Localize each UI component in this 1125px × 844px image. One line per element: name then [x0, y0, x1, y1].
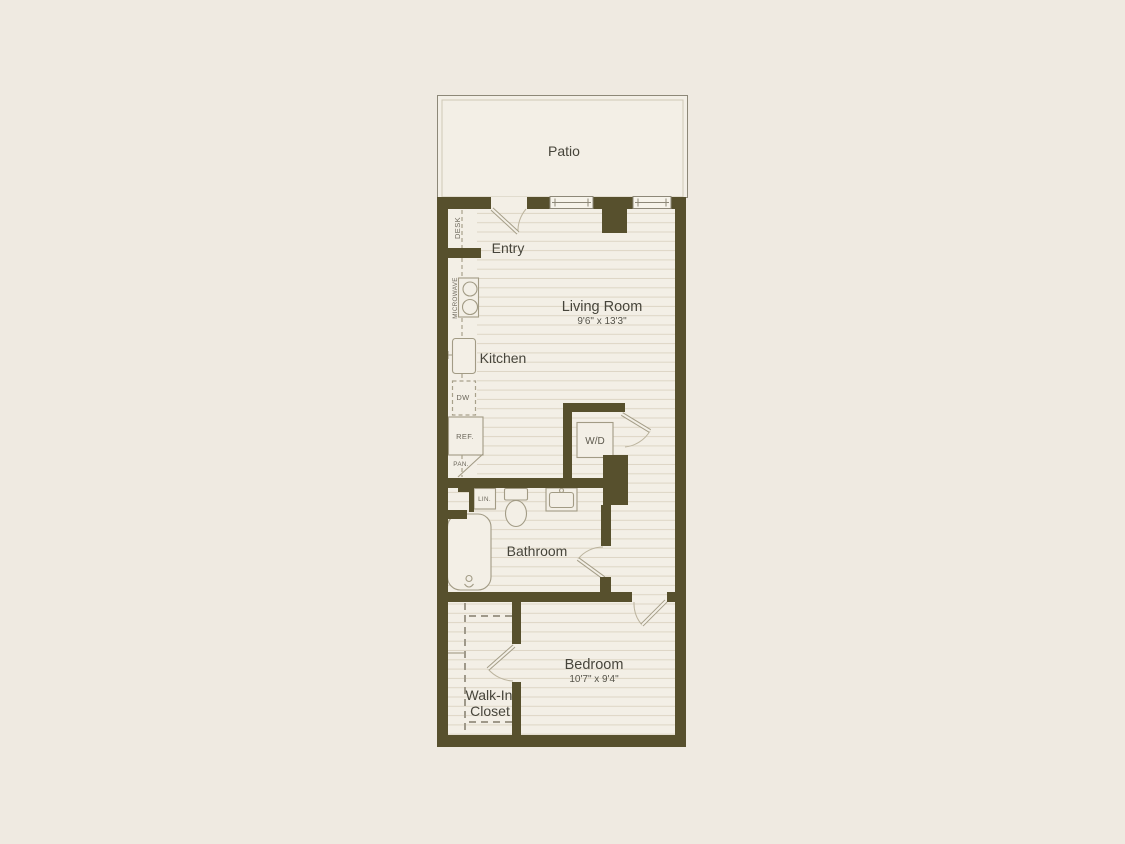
living-room-dimensions: 9'6" x 13'3" — [577, 316, 627, 327]
wall-bath-ne-chunk — [603, 455, 628, 505]
entry-label: Entry — [492, 240, 525, 256]
kitchen-sink — [453, 339, 476, 374]
wall-wd-closet-left — [563, 403, 572, 478]
wall-top-mid — [527, 197, 550, 209]
wall-bedroom-top — [437, 592, 632, 602]
wall-bottom — [437, 735, 686, 747]
floor-plan-page: Patio — [0, 0, 1125, 844]
wall-desk-stub — [448, 248, 481, 258]
wall-closet-right-lower — [512, 682, 521, 747]
refrigerator-label: REF. — [456, 432, 474, 441]
toilet-bowl — [506, 501, 527, 527]
wall-bedroom-top-right-stub — [667, 592, 686, 602]
bathtub — [448, 514, 492, 590]
desk-label: DESK — [453, 217, 462, 239]
floor-planks — [448, 208, 675, 736]
walk-in-closet-label-line2: Closet — [470, 703, 510, 719]
washer-dryer-label: W/D — [585, 436, 604, 447]
dishwasher-label: DW — [456, 393, 470, 402]
wall-wd-closet-top — [563, 403, 625, 412]
patio: Patio — [438, 96, 688, 198]
microwave-label: MICROWAVE — [452, 277, 459, 319]
bedroom-label: Bedroom — [565, 657, 624, 673]
floor-plan-drawing: Patio — [0, 0, 1125, 844]
window — [633, 197, 671, 209]
toilet-tank — [505, 489, 528, 501]
wall-kitchen-bath-divider — [437, 478, 628, 488]
column-pillar — [602, 197, 627, 233]
wall-closet-right-upper — [512, 602, 521, 644]
bedroom-dimensions: 10'7" x 9'4" — [569, 674, 619, 685]
walk-in-closet-label-line1: Walk-In — [466, 687, 513, 703]
wall-right — [675, 197, 686, 747]
kitchen-label: Kitchen — [480, 350, 527, 366]
living-room-label: Living Room — [562, 299, 643, 315]
wall-tub-stub — [437, 510, 467, 519]
wall-linen-protrusion — [458, 488, 474, 492]
wall-bath-right-upper — [601, 505, 611, 546]
window — [550, 197, 593, 209]
wall-left — [437, 197, 448, 747]
pantry-label: PAN. — [453, 461, 468, 468]
patio-label: Patio — [548, 143, 580, 159]
linen-label: LIN. — [478, 496, 491, 503]
bathroom-label: Bathroom — [507, 543, 568, 559]
